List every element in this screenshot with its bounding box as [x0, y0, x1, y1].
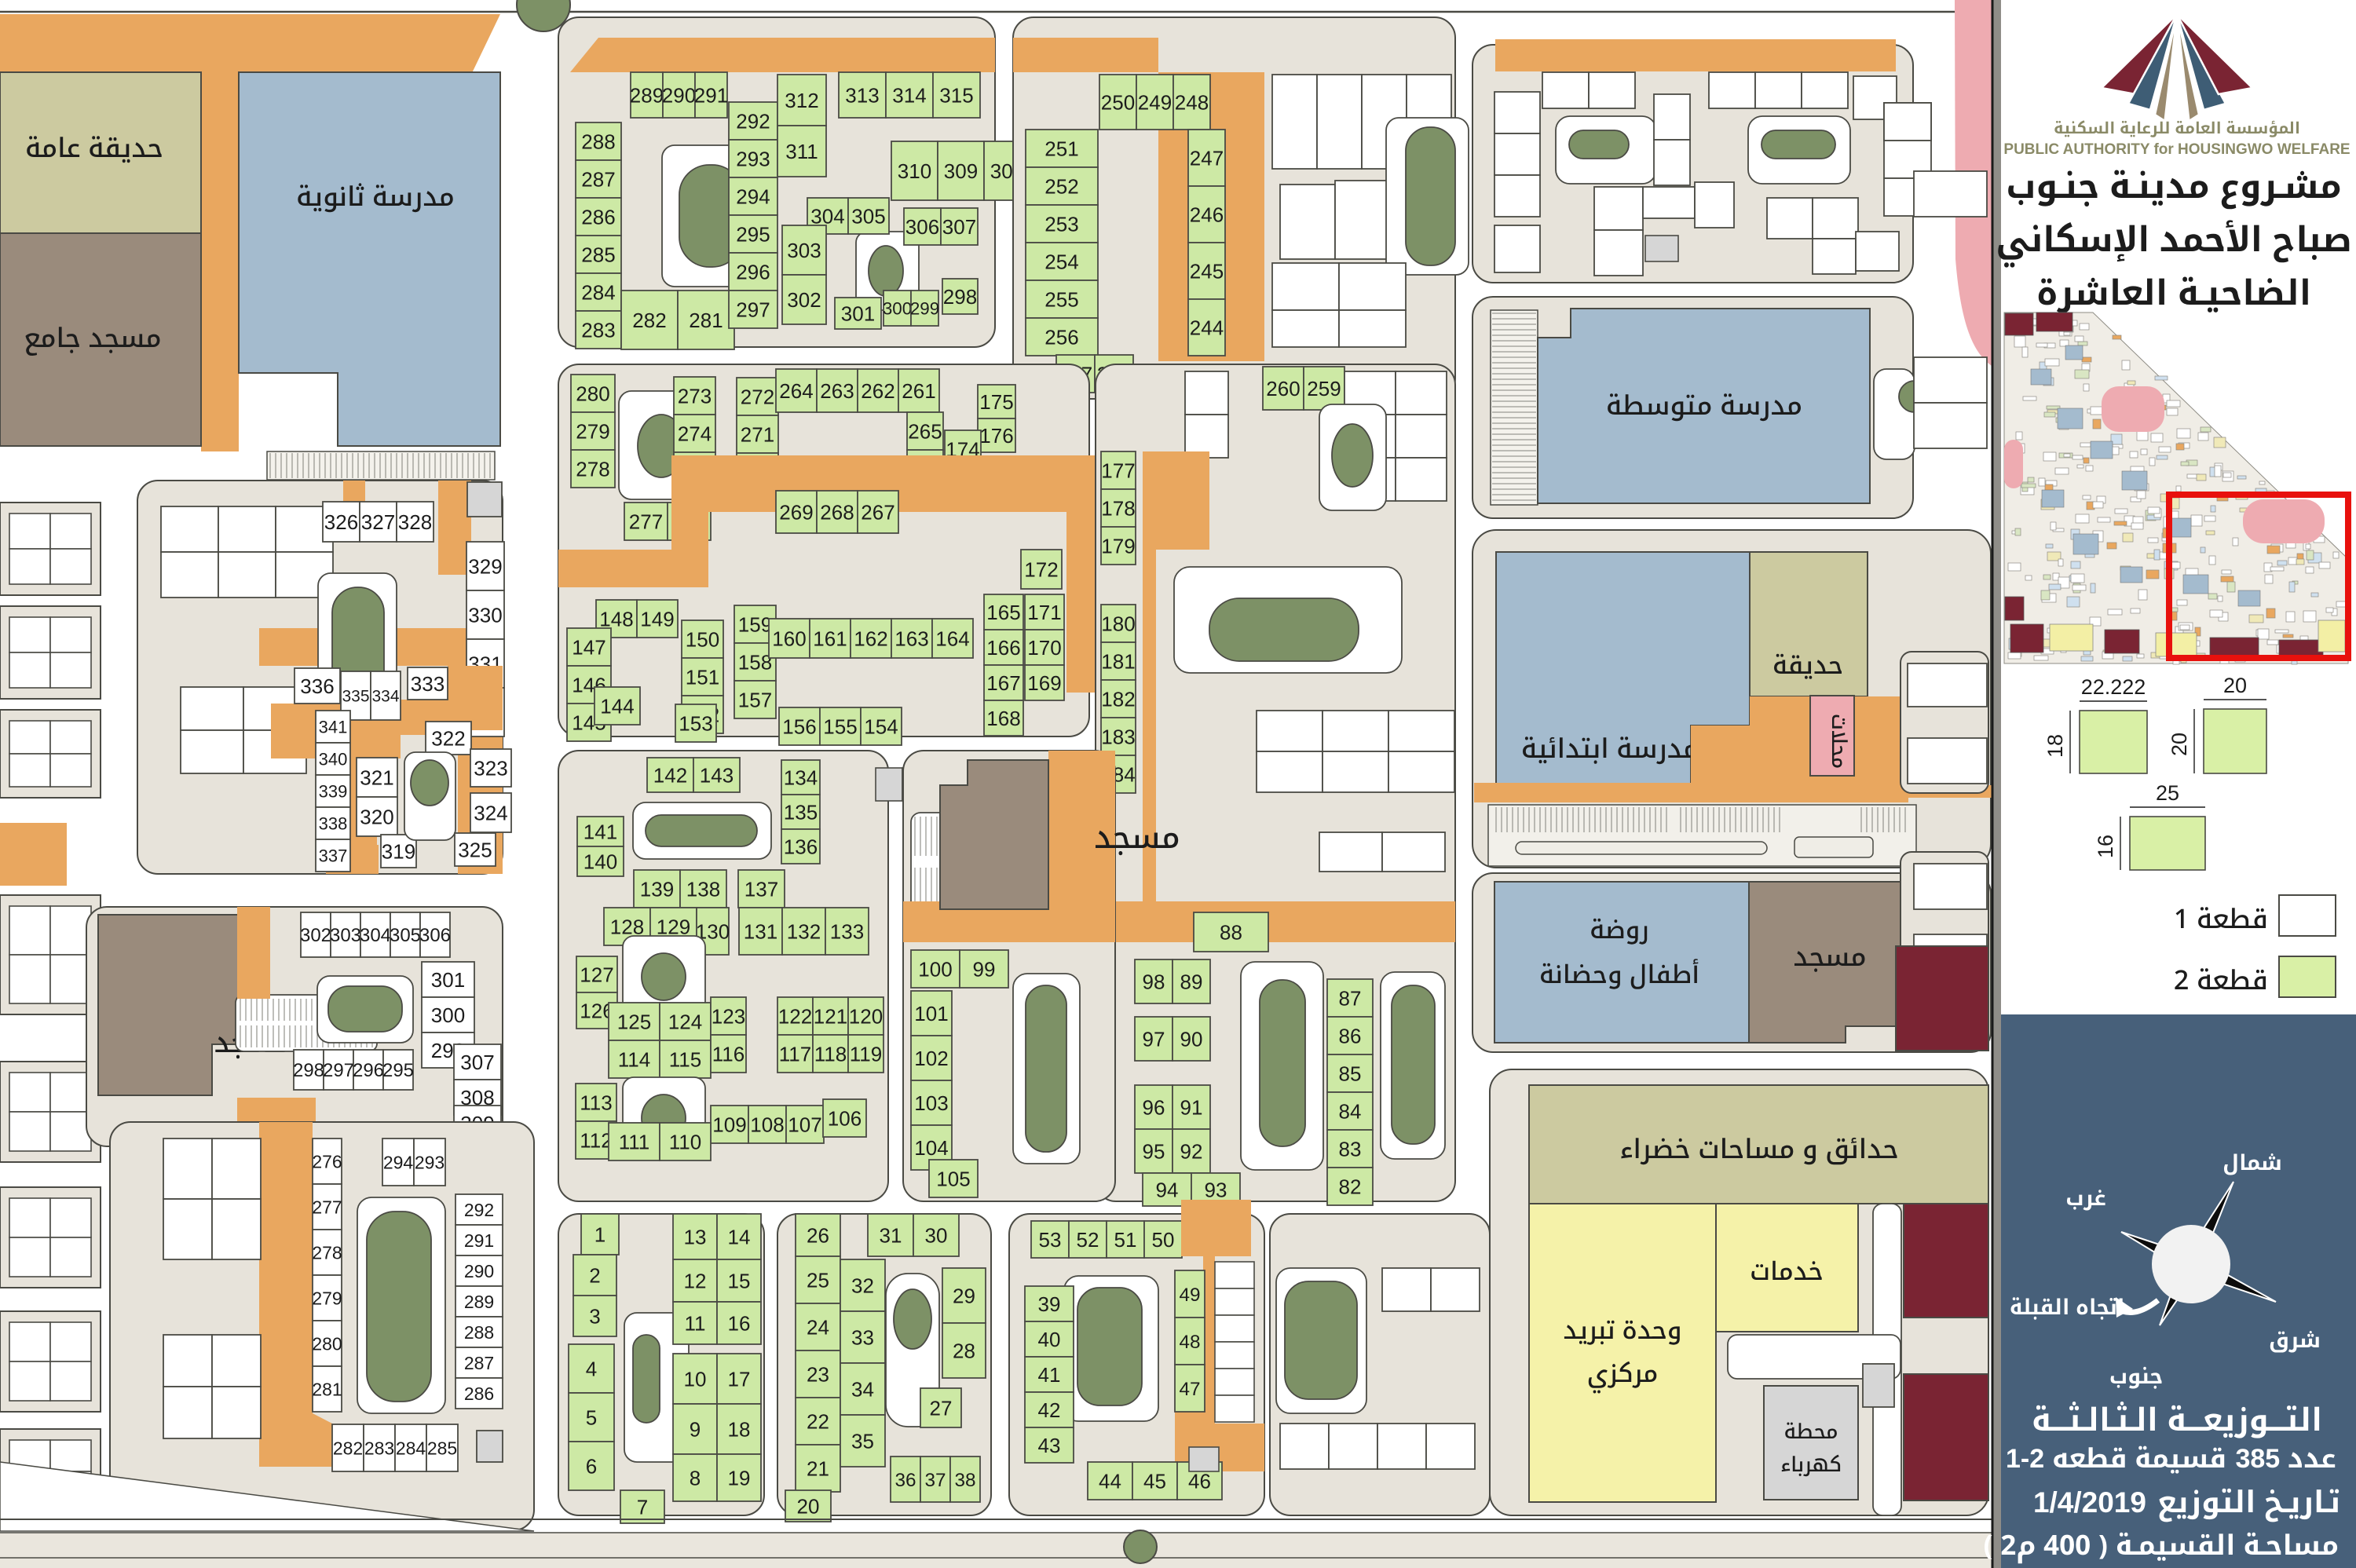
svg-text:178: 178: [1101, 496, 1135, 520]
svg-text:312: 312: [785, 89, 818, 112]
svg-text:301: 301: [841, 302, 875, 325]
svg-text:284: 284: [396, 1438, 426, 1458]
svg-text:314: 314: [892, 83, 926, 107]
svg-text:85: 85: [1339, 1062, 1362, 1085]
svg-text:285: 285: [427, 1438, 457, 1458]
svg-text:327: 327: [361, 510, 395, 534]
svg-text:34: 34: [851, 1377, 874, 1401]
svg-text:137: 137: [744, 877, 778, 901]
svg-text:340: 340: [319, 749, 348, 769]
svg-text:253: 253: [1044, 212, 1078, 236]
svg-text:325: 325: [458, 838, 492, 861]
svg-text:287: 287: [581, 167, 615, 191]
svg-text:300: 300: [883, 299, 912, 319]
svg-text:244: 244: [1190, 316, 1224, 339]
svg-text:172: 172: [1024, 557, 1058, 581]
svg-text:264: 264: [779, 379, 813, 403]
svg-text:310: 310: [898, 159, 931, 183]
svg-text:129: 129: [657, 915, 690, 938]
svg-text:48: 48: [1179, 1332, 1200, 1353]
svg-text:288: 288: [464, 1322, 494, 1343]
svg-text:278: 278: [312, 1242, 342, 1263]
svg-text:45: 45: [1143, 1469, 1166, 1493]
svg-text:131: 131: [744, 919, 777, 943]
svg-text:301: 301: [431, 968, 465, 992]
svg-text:100: 100: [918, 957, 952, 981]
svg-text:303: 303: [787, 239, 821, 262]
svg-text:251: 251: [1044, 137, 1078, 160]
svg-text:286: 286: [581, 205, 615, 228]
svg-text:283: 283: [581, 318, 615, 342]
svg-text:304: 304: [360, 925, 391, 946]
svg-text:298: 298: [943, 285, 977, 309]
svg-text:PUBLIC AUTHORITY for HOUSINGWO: PUBLIC AUTHORITY for HOUSINGWO WELFARE: [2003, 141, 2350, 158]
svg-text:290: 290: [662, 83, 696, 107]
svg-text:92: 92: [1180, 1139, 1203, 1163]
svg-text:136: 136: [784, 835, 818, 858]
svg-text:104: 104: [914, 1136, 948, 1160]
svg-text:93: 93: [1205, 1178, 1227, 1201]
svg-text:28: 28: [953, 1339, 975, 1362]
svg-text:305: 305: [851, 204, 885, 228]
svg-text:99: 99: [973, 957, 996, 981]
svg-text:49: 49: [1179, 1285, 1200, 1306]
svg-text:1/4/2019: 1/4/2019: [2033, 1486, 2146, 1519]
svg-text:286: 286: [464, 1383, 494, 1404]
svg-text:43: 43: [1038, 1434, 1061, 1457]
svg-text:262: 262: [861, 379, 894, 403]
svg-text:274: 274: [678, 422, 712, 445]
svg-text:95: 95: [1143, 1139, 1165, 1163]
svg-text:250: 250: [1101, 90, 1135, 114]
svg-text:252: 252: [1044, 174, 1078, 198]
svg-text:335: 335: [342, 688, 369, 706]
svg-text:249: 249: [1138, 90, 1172, 114]
svg-text:163: 163: [894, 627, 928, 650]
svg-text:86: 86: [1339, 1024, 1362, 1047]
svg-text:98: 98: [1143, 970, 1165, 993]
svg-text:288: 288: [581, 130, 615, 153]
svg-text:161: 161: [813, 627, 847, 650]
svg-text:23: 23: [807, 1362, 829, 1386]
svg-text:304: 304: [810, 204, 844, 228]
svg-text:183: 183: [1101, 725, 1135, 748]
svg-text:113: 113: [580, 1091, 612, 1114]
svg-text:177: 177: [1101, 459, 1135, 482]
svg-text:294: 294: [736, 185, 770, 208]
svg-text:290: 290: [464, 1261, 494, 1281]
svg-text:171: 171: [1027, 601, 1061, 624]
svg-text:53: 53: [1039, 1228, 1062, 1252]
svg-text:5: 5: [586, 1405, 597, 1429]
svg-text:296: 296: [736, 260, 770, 283]
svg-text:42: 42: [1038, 1398, 1061, 1422]
svg-text:102: 102: [914, 1047, 948, 1070]
svg-text:247: 247: [1190, 146, 1224, 170]
svg-text:1-2: 1-2: [2006, 1444, 2044, 1474]
svg-text:320: 320: [360, 805, 393, 828]
svg-text:132: 132: [787, 919, 821, 943]
svg-text:162: 162: [854, 627, 887, 650]
svg-text:37: 37: [924, 1470, 946, 1491]
svg-text:13: 13: [684, 1225, 707, 1248]
svg-text:306: 306: [419, 925, 451, 946]
svg-text:122: 122: [778, 1004, 812, 1028]
svg-text:21: 21: [807, 1457, 829, 1480]
svg-text:302: 302: [300, 925, 331, 946]
svg-text:27: 27: [930, 1396, 953, 1420]
svg-text:259: 259: [1307, 377, 1341, 400]
svg-text:90: 90: [1180, 1027, 1203, 1051]
svg-text:7: 7: [637, 1495, 648, 1519]
svg-text:299: 299: [910, 299, 939, 319]
svg-text:334: 334: [371, 688, 399, 706]
svg-text:103: 103: [914, 1091, 948, 1115]
svg-text:32: 32: [851, 1274, 874, 1297]
svg-text:292: 292: [736, 109, 770, 133]
svg-text:285: 285: [581, 243, 615, 266]
svg-text:127: 127: [580, 963, 613, 986]
svg-text:277: 277: [312, 1197, 342, 1217]
svg-text:268: 268: [820, 500, 854, 524]
svg-text:330: 330: [468, 603, 502, 627]
svg-text:307: 307: [942, 215, 976, 239]
svg-text:294: 294: [383, 1152, 414, 1172]
svg-text:140: 140: [584, 850, 617, 873]
svg-text:89: 89: [1180, 970, 1203, 993]
svg-text:124: 124: [668, 1010, 702, 1033]
svg-text:156: 156: [782, 715, 816, 738]
svg-text:20: 20: [2223, 674, 2247, 697]
svg-text:88: 88: [1220, 920, 1242, 944]
svg-text:170: 170: [1027, 636, 1061, 660]
svg-text:306: 306: [905, 215, 939, 239]
svg-text:107: 107: [788, 1113, 821, 1136]
svg-text:282: 282: [333, 1438, 363, 1458]
svg-text:277: 277: [629, 510, 663, 533]
svg-text:22.222: 22.222: [2081, 675, 2146, 699]
svg-text:319: 319: [382, 839, 415, 863]
svg-text:31: 31: [880, 1223, 902, 1247]
svg-text:302: 302: [787, 288, 821, 312]
svg-text:293: 293: [415, 1152, 444, 1172]
svg-text:22: 22: [807, 1409, 829, 1433]
svg-text:24: 24: [807, 1315, 829, 1339]
svg-text:111: 111: [619, 1130, 650, 1153]
svg-text:35: 35: [851, 1429, 874, 1453]
svg-text:51: 51: [1114, 1228, 1137, 1252]
svg-text:339: 339: [319, 781, 348, 801]
svg-text:38: 38: [954, 1470, 975, 1491]
svg-text:303: 303: [330, 925, 361, 946]
svg-text:30: 30: [925, 1223, 948, 1247]
svg-text:168: 168: [986, 707, 1020, 730]
svg-text:280: 280: [312, 1333, 342, 1354]
svg-text:276: 276: [312, 1151, 342, 1171]
svg-text:116: 116: [712, 1042, 744, 1065]
svg-text:143: 143: [700, 763, 734, 787]
svg-text:385: 385: [2235, 1444, 2280, 1474]
svg-text:20: 20: [2168, 733, 2191, 756]
svg-text:292: 292: [464, 1200, 494, 1220]
svg-text:118: 118: [814, 1042, 847, 1065]
svg-text:9: 9: [690, 1417, 701, 1441]
svg-text:105: 105: [936, 1167, 970, 1190]
svg-text:281: 281: [689, 309, 723, 332]
svg-text:3: 3: [589, 1304, 600, 1328]
svg-text:47: 47: [1179, 1379, 1200, 1400]
svg-text:120: 120: [849, 1004, 883, 1028]
svg-text:341: 341: [319, 717, 348, 736]
svg-text:281: 281: [312, 1379, 342, 1399]
svg-text:313: 313: [845, 83, 879, 107]
svg-text:165: 165: [986, 601, 1020, 624]
svg-text:164: 164: [935, 627, 969, 650]
svg-text:269: 269: [779, 500, 813, 524]
svg-text:148: 148: [599, 607, 633, 630]
svg-text:33: 33: [851, 1325, 874, 1349]
svg-text:279: 279: [312, 1288, 342, 1308]
svg-text:11: 11: [685, 1311, 706, 1335]
svg-text:8: 8: [690, 1466, 701, 1489]
svg-text:321: 321: [360, 766, 393, 789]
svg-text:101: 101: [914, 1002, 948, 1025]
svg-text:135: 135: [784, 800, 818, 824]
svg-text:273: 273: [678, 384, 712, 408]
svg-text:181: 181: [1101, 649, 1135, 673]
svg-text:108: 108: [750, 1113, 784, 1136]
svg-text:10: 10: [684, 1367, 707, 1391]
svg-text:297: 297: [323, 1060, 354, 1081]
svg-text:18: 18: [2043, 734, 2067, 758]
svg-text:138: 138: [686, 877, 720, 901]
svg-text:150: 150: [686, 627, 719, 651]
svg-text:160: 160: [772, 627, 806, 650]
svg-text:282: 282: [632, 309, 666, 332]
svg-text:180: 180: [1101, 612, 1135, 635]
svg-text:19: 19: [728, 1466, 751, 1489]
svg-text:39: 39: [1038, 1292, 1061, 1316]
svg-text:297: 297: [736, 298, 770, 321]
svg-text:158: 158: [738, 650, 772, 674]
svg-text:149: 149: [640, 607, 674, 630]
svg-text:179: 179: [1101, 534, 1135, 557]
svg-text:265: 265: [908, 419, 942, 443]
svg-text:336: 336: [300, 674, 334, 698]
svg-text:50: 50: [1152, 1228, 1175, 1252]
svg-text:167: 167: [986, 671, 1020, 695]
svg-text:291: 291: [694, 83, 728, 107]
svg-text:263: 263: [820, 379, 854, 403]
svg-text:25: 25: [2156, 781, 2179, 805]
svg-text:289: 289: [464, 1292, 494, 1312]
svg-text:272: 272: [741, 385, 774, 408]
svg-text:169: 169: [1027, 671, 1061, 695]
svg-text:295: 295: [382, 1060, 414, 1081]
svg-text:16: 16: [2094, 835, 2117, 858]
svg-text:109: 109: [712, 1113, 746, 1136]
svg-text:83: 83: [1339, 1137, 1362, 1160]
svg-text:255: 255: [1044, 287, 1078, 311]
svg-text:20: 20: [797, 1494, 820, 1518]
svg-text:284: 284: [581, 280, 615, 304]
svg-text:315: 315: [939, 83, 973, 107]
svg-text:18: 18: [728, 1417, 751, 1441]
svg-text:112: 112: [580, 1128, 612, 1152]
svg-text:267: 267: [861, 500, 894, 524]
svg-text:245: 245: [1190, 259, 1224, 283]
svg-text:280: 280: [576, 382, 609, 405]
svg-text:298: 298: [293, 1060, 324, 1081]
svg-text:278: 278: [576, 457, 609, 481]
svg-text:84: 84: [1339, 1099, 1362, 1123]
svg-text:300: 300: [431, 1003, 465, 1027]
svg-text:97: 97: [1143, 1027, 1165, 1051]
svg-text:246: 246: [1190, 203, 1224, 226]
svg-text:337: 337: [319, 846, 348, 865]
svg-text:329: 329: [468, 554, 502, 578]
svg-text:157: 157: [738, 688, 772, 711]
svg-text:119: 119: [850, 1042, 882, 1065]
svg-text:29: 29: [953, 1284, 975, 1307]
svg-text:26: 26: [807, 1223, 829, 1247]
svg-text:87: 87: [1339, 986, 1362, 1010]
svg-text:44: 44: [1099, 1469, 1121, 1493]
svg-text:324: 324: [474, 801, 507, 824]
svg-text:125: 125: [617, 1010, 651, 1033]
svg-text:147: 147: [572, 635, 605, 659]
svg-text:16: 16: [728, 1311, 751, 1335]
svg-text:46: 46: [1188, 1469, 1211, 1493]
svg-text:139: 139: [640, 877, 674, 901]
svg-text:260: 260: [1266, 377, 1300, 400]
svg-text:291: 291: [464, 1230, 494, 1251]
svg-text:110: 110: [669, 1130, 701, 1153]
svg-text:96: 96: [1143, 1095, 1165, 1119]
svg-text:25: 25: [807, 1268, 829, 1292]
svg-text:123: 123: [712, 1004, 745, 1028]
svg-text:279: 279: [576, 419, 609, 443]
svg-text:323: 323: [474, 756, 507, 780]
svg-text:4: 4: [586, 1357, 597, 1380]
svg-text:159: 159: [738, 612, 772, 636]
svg-text:128: 128: [610, 915, 644, 938]
svg-text:175: 175: [979, 390, 1013, 414]
svg-text:82: 82: [1339, 1175, 1362, 1198]
svg-text:293: 293: [736, 147, 770, 170]
svg-text:166: 166: [986, 636, 1020, 660]
svg-text:295: 295: [736, 222, 770, 246]
svg-text:134: 134: [784, 766, 818, 789]
svg-text:271: 271: [741, 422, 774, 446]
svg-text:41: 41: [1038, 1363, 1061, 1387]
svg-text:322: 322: [431, 726, 465, 750]
svg-text:117: 117: [779, 1042, 811, 1065]
svg-text:182: 182: [1101, 687, 1135, 711]
svg-text:36: 36: [894, 1470, 916, 1491]
svg-text:333: 333: [411, 672, 444, 696]
svg-text:155: 155: [823, 715, 857, 738]
svg-text:151: 151: [686, 665, 719, 689]
svg-text:305: 305: [390, 925, 421, 946]
svg-text:142: 142: [653, 763, 687, 787]
svg-text:40: 40: [1038, 1328, 1061, 1351]
svg-text:114: 114: [618, 1047, 650, 1071]
svg-text:256: 256: [1044, 325, 1078, 349]
svg-text:311: 311: [785, 140, 818, 163]
svg-text:296: 296: [353, 1060, 384, 1081]
svg-text:338: 338: [319, 813, 348, 833]
svg-text:17: 17: [728, 1367, 751, 1391]
svg-text:254: 254: [1044, 250, 1078, 273]
svg-text:121: 121: [814, 1004, 847, 1028]
svg-text:141: 141: [584, 820, 617, 843]
svg-text:106: 106: [828, 1106, 862, 1130]
svg-text:287: 287: [464, 1353, 494, 1373]
svg-text:1: 1: [594, 1223, 605, 1246]
svg-text:328: 328: [398, 510, 432, 534]
svg-text:115: 115: [669, 1047, 701, 1071]
svg-text:2: 2: [589, 1263, 600, 1287]
svg-text:94: 94: [1156, 1178, 1179, 1201]
svg-text:12: 12: [684, 1269, 707, 1292]
svg-text:133: 133: [830, 919, 864, 943]
svg-text:248: 248: [1175, 90, 1209, 114]
svg-text:15: 15: [728, 1269, 751, 1292]
svg-text:6: 6: [586, 1454, 597, 1478]
svg-text:176: 176: [979, 424, 1013, 448]
svg-text:261: 261: [902, 379, 935, 403]
svg-text:326: 326: [324, 510, 358, 534]
svg-text:289: 289: [630, 83, 664, 107]
svg-text:144: 144: [600, 694, 634, 718]
svg-text:283: 283: [364, 1438, 394, 1458]
svg-text:91: 91: [1180, 1095, 1203, 1119]
svg-text:153: 153: [679, 711, 712, 735]
svg-text:309: 309: [944, 159, 978, 183]
svg-text:14: 14: [728, 1225, 751, 1248]
svg-text:52: 52: [1077, 1228, 1099, 1252]
svg-text:154: 154: [864, 715, 898, 738]
svg-text:307: 307: [460, 1051, 494, 1074]
